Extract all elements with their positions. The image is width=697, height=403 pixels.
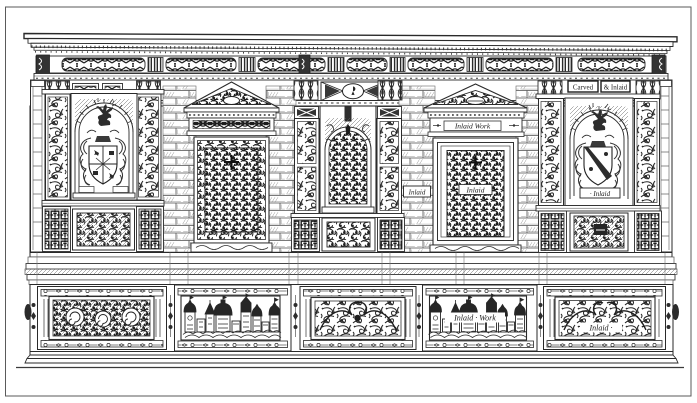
svg-text:Inlaid Work: Inlaid Work <box>454 122 491 131</box>
svg-text:Carved: Carved <box>573 84 594 92</box>
svg-text:Inlaid: Inlaid <box>466 186 485 195</box>
svg-text:Inlaid · Work: Inlaid · Work <box>453 314 496 323</box>
svg-text:Inlaid: Inlaid <box>408 189 426 197</box>
svg-text:Inlaid ·: Inlaid · <box>588 324 612 333</box>
svg-text:· Inlaid: · Inlaid <box>590 190 611 198</box>
svg-text:& Inlaid: & Inlaid <box>604 84 628 92</box>
